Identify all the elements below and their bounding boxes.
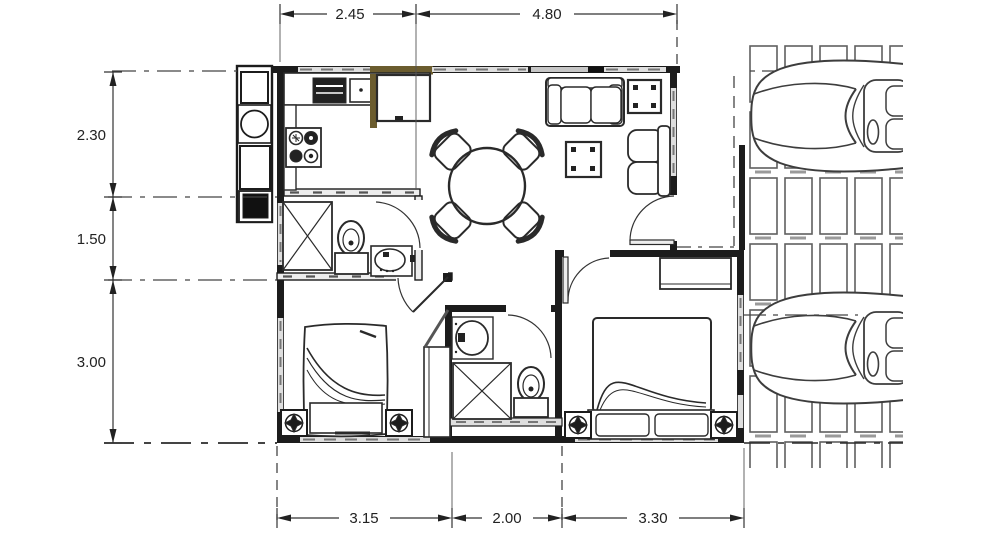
oven-icon [313, 78, 346, 103]
door-swing-icon [508, 315, 551, 358]
entry-door [630, 196, 674, 245]
washbasin-icon [371, 246, 415, 276]
fridge-icon [377, 75, 430, 121]
kitchen [284, 73, 430, 190]
dining-area [428, 127, 547, 246]
dimension-top: 2.45 4.80 [280, 4, 677, 24]
door-leaf [425, 310, 448, 347]
door-leaf [563, 257, 568, 303]
bed-icon [304, 324, 388, 437]
car-icon [751, 293, 912, 404]
utility-column [237, 66, 272, 222]
bath2-door-opening [506, 304, 551, 313]
armchair-icon [628, 126, 670, 196]
door-swing-icon [568, 258, 609, 301]
door-swing-icon [376, 202, 420, 248]
car-icon [751, 61, 912, 172]
bathroom-1 [283, 202, 420, 276]
dim-label-bottom-3: 3.30 [638, 510, 667, 527]
chair-icon [500, 127, 547, 174]
dim-label-bottom-2: 2.00 [492, 510, 521, 527]
dim-label-left-1: 2.30 [77, 127, 106, 144]
laundry-sink-icon [241, 72, 268, 103]
floor-plan-drawing: 2.45 4.80 2.30 1.50 3.00 3.15 2.00 3.30 [0, 0, 1000, 538]
nightstand-lamp-icon [386, 410, 412, 436]
dim-label-top-2: 4.80 [532, 6, 561, 23]
bed-icon [588, 318, 714, 439]
wall-kitchen-south [284, 189, 420, 196]
chair-icon [428, 127, 475, 174]
door-leaf [413, 277, 448, 312]
dim-label-top-1: 2.45 [335, 6, 364, 23]
floor-plan-canvas: 2.45 4.80 2.30 1.50 3.00 3.15 2.00 3.30 [0, 0, 1000, 538]
dining-table-icon [449, 148, 525, 224]
living-room [546, 78, 674, 245]
wardrobe-icon [424, 347, 450, 437]
chair-icon [500, 199, 547, 246]
nightstand-lamp-icon [281, 410, 307, 436]
chair-icon [428, 199, 475, 246]
window-bed2-east-2 [738, 395, 743, 428]
bedroom-2 [563, 257, 737, 439]
bedroom-1 [281, 277, 450, 437]
bath1-door-opening [414, 200, 423, 250]
dim-label-left-2: 1.50 [77, 231, 106, 248]
wall-bed2-west [555, 250, 562, 443]
wardrobe-icon [660, 258, 731, 289]
toilet-icon [514, 367, 548, 417]
toilet-icon [335, 221, 368, 274]
dimension-bottom: 3.15 2.00 3.30 [277, 508, 744, 528]
stove-icon [286, 128, 321, 167]
cabinet-icon [240, 146, 270, 189]
dim-label-bottom-1: 3.15 [349, 510, 378, 527]
washbasin-icon [452, 317, 493, 359]
bed2-door-opening [564, 249, 610, 258]
entry-door-opening [669, 195, 678, 241]
door-swing-icon [630, 196, 674, 241]
dim-label-left-3: 3.00 [77, 354, 106, 371]
coffee-table-icon [566, 142, 601, 177]
sofa-icon [546, 78, 624, 126]
dimension-left: 2.30 1.50 3.00 [77, 72, 122, 443]
carport-fence-wall [739, 145, 745, 250]
door-swing-icon [398, 278, 413, 312]
nightstand-lamp-icon [711, 412, 737, 438]
bathroom-2 [452, 315, 551, 419]
side-table-icon [628, 80, 661, 113]
nightstand-lamp-icon [565, 412, 591, 438]
